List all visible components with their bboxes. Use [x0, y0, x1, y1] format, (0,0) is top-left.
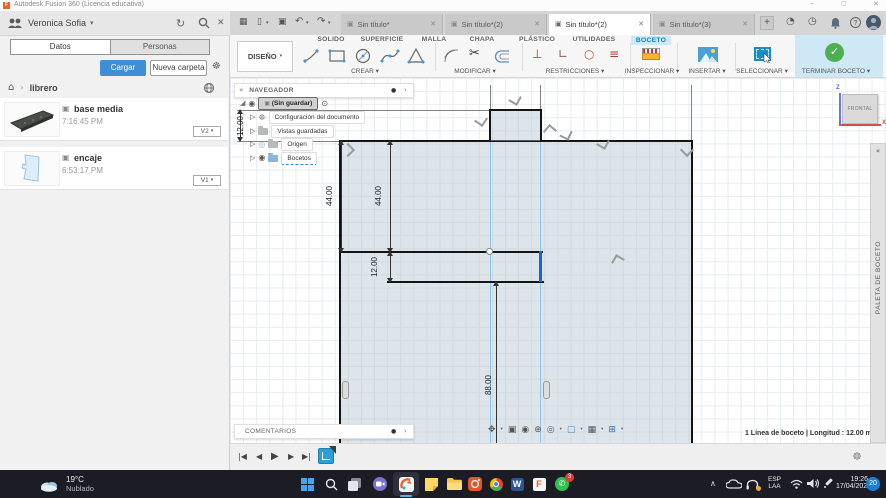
upload-button[interactable]: Cargar	[100, 60, 146, 76]
dimension-line-44-inner[interactable]	[390, 141, 391, 252]
doc-cube-icon: ▣	[555, 21, 562, 28]
zoom-icon[interactable]: ⊕	[534, 426, 542, 435]
display-settings-icon[interactable]: ▢	[567, 426, 576, 435]
undo-caret-icon[interactable]: ▾	[306, 21, 309, 26]
ribbon: SOLIDO SUPERFICIE MALLA CHAPA PLÁSTICO U…	[230, 35, 886, 78]
constraint-icon[interactable]	[474, 113, 488, 127]
close-panel-icon[interactable]: ✕	[217, 19, 225, 28]
taskbar-active-underline	[400, 495, 412, 497]
timeline-gear-icon[interactable]: ☸	[852, 451, 862, 462]
projection-line	[540, 85, 541, 110]
panel-dot-icon[interactable]: ●	[391, 88, 396, 94]
document-tab-3-active[interactable]: ▣ Sin título*(2) ✕	[549, 14, 651, 35]
weather-cloud-icon	[38, 477, 60, 492]
app-grid-icon[interactable]: ▦	[239, 18, 248, 27]
document-tab-1[interactable]: ▣ Sin título* ✕	[341, 14, 443, 35]
data-panel-header: Veronica Sofia ▾ ↻ ✕	[0, 11, 230, 36]
dimension-text-88[interactable]: 88.00	[484, 370, 494, 400]
version-selector[interactable]: V1 ▾	[193, 175, 221, 186]
projection-line	[490, 85, 491, 110]
tree-item-label[interactable]: Configuración del documento	[269, 111, 366, 124]
projection-line	[691, 85, 692, 141]
timeline-step-back-button[interactable]: ◀	[256, 453, 262, 461]
version-label: V2	[201, 128, 209, 135]
cube-icon: ▣	[62, 154, 70, 162]
section-terminar-boceto[interactable]: TERMINAR BOCETO ▾	[802, 67, 870, 75]
fusion-360-app-icon[interactable]	[398, 476, 414, 492]
weather-widget[interactable]: 19°C Nublado	[38, 470, 94, 498]
dimension-text-12-step[interactable]: 12.00	[370, 252, 380, 282]
file-name[interactable]: encaje	[74, 153, 102, 163]
headset-icon[interactable]	[746, 478, 759, 490]
panel-expand-icon[interactable]: ›	[404, 87, 407, 94]
section-crear[interactable]: CREAR ▾	[351, 67, 379, 75]
new-file-icon[interactable]: ▯	[257, 18, 262, 27]
breadcrumb-sep-icon: ›	[20, 84, 23, 92]
file-thumbnail	[4, 151, 60, 186]
doc-tab-label: Sin título*(2)	[462, 20, 531, 29]
ribbon-tab-solido[interactable]: SOLIDO	[317, 36, 344, 43]
insert-image-tool-icon[interactable]	[698, 47, 718, 62]
perpendicular-constraint-tool-icon[interactable]: ∟	[558, 48, 568, 60]
doc-cube-icon: ▣	[347, 21, 354, 28]
selected-sketch-line[interactable]	[539, 251, 542, 282]
document-tab-4[interactable]: ▣ Sin título*(3) ✕	[653, 14, 755, 35]
language-line1: ESP	[768, 476, 781, 483]
expander-icon[interactable]: ▷	[250, 141, 255, 148]
axis-x-label: X	[882, 120, 886, 126]
timeline-bar: |◀ ◀ ▶ ▶ ▶| ☸	[230, 443, 886, 470]
viewcube-face[interactable]: FRONTAL	[842, 94, 878, 124]
minimize-button[interactable]: –	[810, 0, 814, 8]
ribbon-tab-plastico[interactable]: PLÁSTICO	[519, 36, 555, 43]
caret-icon[interactable]: ▾	[621, 428, 623, 433]
file-thumbnail	[4, 102, 60, 137]
design-label: DISEÑO	[248, 52, 277, 61]
panel-expand-icon[interactable]: ›	[404, 428, 407, 435]
ribbon-tab-utilidades[interactable]: UTILIDADES	[573, 36, 616, 43]
comments-bar[interactable]: COMENTARIOS ● ›	[234, 424, 414, 439]
help-icon[interactable]: ?	[850, 17, 861, 28]
undo-icon[interactable]: ↶	[295, 17, 303, 27]
timeline-play-button[interactable]: ▶	[271, 452, 279, 462]
axis-z-line	[839, 93, 841, 124]
collapse-icon[interactable]: «	[239, 87, 243, 94]
caret-icon[interactable]: ▾	[560, 428, 562, 433]
equal-constraint-icon[interactable]: ≡	[609, 48, 619, 60]
language-line2: LAA	[768, 483, 781, 490]
comments-title: COMENTARIOS	[245, 428, 296, 435]
trim-tool-icon[interactable]: ✂	[469, 47, 480, 60]
clock-time: 19:26	[836, 476, 868, 483]
expander-icon[interactable]: ▷	[250, 114, 255, 121]
navigator-row-sketches[interactable]: ▷ ◉ Bocetos	[234, 152, 317, 165]
spline-tool-icon[interactable]	[380, 46, 400, 66]
section-divider	[522, 43, 523, 71]
circle-tool-icon[interactable]	[353, 46, 373, 66]
axis-z-label: Z	[836, 85, 840, 91]
file-name[interactable]: base media	[74, 104, 123, 114]
palette-title: PALETA DE BOCETO	[875, 241, 882, 314]
tab-datos[interactable]: Datos	[11, 40, 111, 54]
constraint-icon[interactable]	[559, 127, 572, 140]
section-inspeccionar[interactable]: INSPECCIONAR ▾	[625, 67, 680, 75]
navigator-root-row[interactable]: ◢ ◉ ▣ (Sin guardar) ⊙	[234, 97, 328, 110]
chrome-icon[interactable]	[488, 476, 504, 492]
ribbon-tab-superficie[interactable]: SUPERFICIE	[361, 36, 404, 43]
tree-item-label[interactable]: Bocetos	[281, 152, 317, 165]
caret-icon[interactable]: ▾	[601, 428, 603, 433]
wifi-icon[interactable]	[790, 479, 803, 489]
folder-icon	[258, 128, 268, 135]
sync-status-icon[interactable]	[203, 82, 215, 94]
ribbon-tab-boceto-active[interactable]: BOCETO	[631, 36, 671, 45]
section-seleccionar[interactable]: SELECCIONAR ▾	[736, 67, 788, 75]
job-status-icon[interactable]: ◔	[786, 17, 795, 27]
eye-icon[interactable]: ◉	[258, 154, 265, 162]
navigator-title: NAVEGADOR	[249, 87, 293, 94]
data-panel: Veronica Sofia ▾ ↻ ✕ Datos Personas Carg…	[0, 11, 230, 470]
constraint-icon[interactable]	[508, 92, 522, 106]
panel-gear-icon[interactable]: ☸	[212, 62, 221, 72]
people-icon	[7, 17, 23, 29]
section-restricciones[interactable]: RESTRICCIONES ▾	[546, 67, 605, 75]
ribbon-tab-malla[interactable]: MALLA	[422, 36, 447, 43]
look-at-icon[interactable]: ▣	[508, 426, 517, 435]
close-tab-icon[interactable]: ✕	[742, 21, 748, 28]
file-time: 7:16:45 PM	[62, 117, 103, 126]
expander-icon[interactable]: ▷	[250, 155, 255, 162]
grid-settings-icon[interactable]: ▦	[588, 426, 597, 435]
corner-icon: ◢	[240, 100, 245, 107]
notification-bell-icon[interactable]	[830, 17, 841, 29]
volume-icon[interactable]	[807, 478, 820, 489]
sketch-profile-tab[interactable]	[489, 109, 542, 141]
redo-caret-icon[interactable]: ▾	[328, 21, 331, 26]
maximize-button[interactable]: ▢	[841, 1, 847, 7]
section-divider	[435, 43, 436, 71]
close-tab-icon[interactable]: ✕	[430, 21, 436, 28]
navigator-row-origin[interactable]: ▷ ◎ Origen	[234, 138, 313, 151]
view-nav-toolbar: ✥▾ ▣ ◉ ⊕ ◎▾ ▢▾ ▦▾ ⊞▾	[488, 424, 623, 437]
search-icon[interactable]	[198, 17, 210, 29]
redo-icon[interactable]: ↷	[317, 17, 325, 27]
constraint-icon[interactable]	[543, 124, 557, 138]
fix-constraint-icon[interactable]: ⊥	[532, 48, 542, 60]
tree-item-label[interactable]: Origen	[281, 138, 313, 151]
chat-app-icon[interactable]	[372, 476, 388, 492]
section-modificar[interactable]: MODIFICAR ▾	[454, 67, 496, 75]
weather-temp: 19°C	[66, 475, 94, 484]
window-title: Autodesk Fusion 360 (Licencia educativa)	[14, 1, 144, 8]
sketch-palette-strip[interactable]: « PALETA DE BOCETO	[870, 143, 886, 443]
construction-line[interactable]	[540, 142, 541, 443]
tree-item-label[interactable]: Vistas guardadas	[271, 125, 333, 138]
panel-dot-icon[interactable]: ●	[391, 429, 396, 435]
user-caret-icon[interactable]: ▾	[90, 20, 94, 27]
viewports-icon[interactable]: ⊞	[608, 426, 616, 435]
midpoint-marker[interactable]	[486, 248, 493, 255]
axis-x-line	[839, 124, 881, 126]
weather-condition: Nublado	[66, 484, 94, 493]
fusion-logo-icon: F	[3, 2, 10, 9]
breadcrumb: ⌂ › librero	[8, 81, 58, 95]
line-grip-handle[interactable]	[543, 381, 550, 399]
breadcrumb-folder[interactable]: librero	[30, 83, 58, 93]
navigator-header[interactable]: « NAVEGADOR ● ›	[234, 83, 414, 98]
close-window-button[interactable]: ✕	[873, 1, 879, 8]
cube-icon: ▣	[264, 100, 270, 107]
collapse-icon[interactable]: «	[876, 148, 880, 155]
zoom-window-icon[interactable]: ◎	[547, 426, 555, 435]
tab-personas[interactable]: Personas	[111, 40, 210, 54]
version-selector[interactable]: V2 ▾	[193, 126, 221, 137]
viewcube[interactable]: Z FRONTAL X	[830, 88, 884, 134]
new-folder-button[interactable]: Nueva carpeta	[150, 60, 207, 76]
doc-tab-label: Sin título*(2)	[566, 20, 635, 29]
navigator-row-doc-settings[interactable]: ▷ ☸ Configuración del documento	[234, 111, 365, 124]
ribbon-tab-chapa[interactable]: CHAPA	[470, 36, 495, 43]
dimension-line-12-step[interactable]	[390, 252, 391, 282]
panel-tabs: Datos Personas	[10, 39, 210, 55]
fillet-tool-icon[interactable]	[442, 46, 462, 66]
clock-widget[interactable]: 19:26 17/04/2022	[836, 476, 868, 490]
eye-icon[interactable]: ◉	[248, 100, 255, 108]
timeline-marker-flag[interactable]	[329, 446, 336, 454]
sketch-line-horizontal[interactable]	[387, 281, 544, 283]
close-tab-icon[interactable]: ✕	[534, 21, 540, 28]
dimension-text-44-inner[interactable]: 44.00	[374, 181, 384, 211]
measure-tool-icon[interactable]	[642, 48, 660, 61]
caret-icon[interactable]: ▾	[580, 428, 582, 433]
radio-icon[interactable]: ⊙	[321, 100, 328, 108]
dimension-text-44-outer[interactable]: 44.00	[325, 181, 335, 211]
doc-cube-icon: ▣	[659, 21, 666, 28]
root-document-label: (Sin guardar)	[272, 100, 312, 107]
onedrive-icon[interactable]	[726, 479, 742, 489]
root-document-chip[interactable]: ▣ (Sin guardar)	[258, 97, 318, 110]
cube-icon: ▣	[62, 105, 70, 113]
tray-chevron-up-icon[interactable]: ∧	[710, 480, 716, 488]
sketch-profile-rect[interactable]	[339, 140, 693, 443]
sticky-notes-icon[interactable]	[423, 476, 439, 492]
task-view-icon[interactable]	[347, 476, 363, 492]
tangent-constraint-icon[interactable]: ○	[584, 48, 594, 60]
document-tab-bar: ▦ ▯ ▾ ▣ ↶ ▾ ↷ ▾ ▣ Sin título* ✕ ▣ Sin tí…	[230, 11, 886, 35]
pan-icon[interactable]: ◉	[521, 426, 529, 435]
start-button[interactable]	[299, 476, 315, 492]
file-explorer-icon[interactable]	[446, 476, 462, 492]
line-grip-handle[interactable]	[342, 381, 349, 399]
whatsapp-icon[interactable]: ✆ 3	[554, 476, 570, 492]
file-card-encaje[interactable]: ▣ encaje 6:53:17 PM V1 ▾	[0, 147, 228, 190]
new-file-caret-icon[interactable]: ▾	[266, 21, 269, 26]
whatsapp-badge: 3	[565, 473, 574, 482]
timeline-skip-end-button[interactable]: ▶|	[302, 453, 311, 461]
doc-cube-icon: ▣	[451, 21, 458, 28]
timeline-sketch-feature[interactable]	[318, 448, 334, 464]
language-indicator[interactable]: ESP LAA	[768, 476, 781, 490]
save-icon[interactable]: ▣	[278, 18, 287, 27]
clock-date: 17/04/2022	[836, 483, 868, 490]
camera-app-icon[interactable]	[467, 476, 483, 492]
timeline-skip-start-button[interactable]: |◀	[238, 453, 247, 461]
new-tab-button[interactable]: +	[760, 16, 774, 30]
fusion-launcher-icon[interactable]: F	[531, 476, 547, 492]
offset-tool-icon[interactable]	[492, 46, 512, 66]
expander-icon[interactable]: ▷	[250, 128, 255, 135]
polygon-tool-icon[interactable]	[406, 46, 426, 66]
eye-off-icon[interactable]: ◎	[258, 141, 265, 149]
close-tab-icon[interactable]: ✕	[638, 21, 644, 28]
select-tool-icon[interactable]	[754, 47, 771, 61]
taskbar: 19°C Nublado W F ✆ 3	[0, 470, 886, 498]
pen-icon[interactable]	[823, 478, 834, 489]
version-label: V1	[201, 177, 209, 184]
rectangle-tool-icon[interactable]	[327, 46, 347, 66]
dimension-line-44-outer[interactable]	[341, 141, 342, 252]
orbit-icon[interactable]: ✥	[488, 426, 496, 435]
file-time: 6:53:17 PM	[62, 166, 103, 175]
history-clock-icon[interactable]: ◷	[808, 17, 817, 27]
caret-icon[interactable]: ▾	[501, 428, 503, 433]
finish-sketch-check-icon[interactable]: ✓	[825, 43, 844, 62]
notification-count-badge[interactable]: 20	[866, 477, 880, 491]
section-insertar[interactable]: INSERTAR ▾	[688, 67, 725, 75]
gear-icon: ☸	[258, 114, 265, 122]
doc-tab-label: Sin título*(3)	[670, 20, 739, 29]
selection-status: 1 Línea de boceto | Longitud : 12.00 mm	[745, 430, 878, 437]
left-panel-footer	[0, 443, 230, 470]
canvas[interactable]: 12.00 44.00 44.00 12.00 88.00 « NAVEGADO…	[230, 78, 886, 443]
design-caret-icon: ▾	[280, 54, 283, 59]
line-tool-icon[interactable]	[302, 46, 322, 66]
navigator-row-saved-views[interactable]: ▷ Vistas guardadas	[234, 125, 334, 138]
taskbar-search-icon[interactable]	[323, 476, 339, 492]
folder-icon	[268, 155, 278, 162]
home-icon[interactable]: ⌂	[8, 83, 14, 93]
version-caret-icon: ▾	[211, 129, 214, 134]
timeline-step-forward-button[interactable]: ▶	[288, 453, 294, 461]
dimension-line-88[interactable]	[496, 282, 497, 443]
folder-icon	[268, 141, 278, 148]
document-tab-2[interactable]: ▣ Sin título*(2) ✕	[445, 14, 547, 35]
avatar[interactable]	[866, 15, 881, 30]
word-icon[interactable]: W	[509, 476, 525, 492]
design-workspace-dropdown[interactable]: DISEÑO ▾	[237, 41, 293, 72]
refresh-icon[interactable]: ↻	[176, 18, 185, 29]
doc-tab-label: Sin título*	[358, 20, 427, 29]
file-card-base-media[interactable]: ▣ base media 7:16:45 PM V2 ▾	[0, 98, 228, 141]
version-caret-icon: ▾	[211, 178, 214, 183]
user-name[interactable]: Veronica Sofia	[28, 18, 86, 28]
